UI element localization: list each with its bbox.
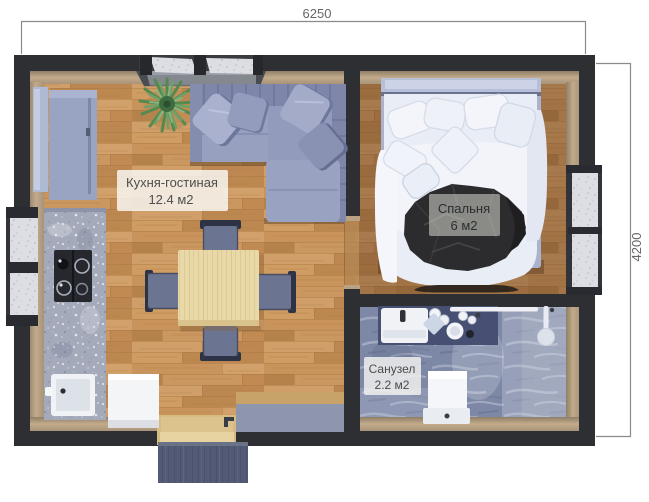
svg-text:6250: 6250 bbox=[303, 6, 332, 21]
svg-text:4200: 4200 bbox=[629, 233, 644, 262]
svg-text:12.4 м2: 12.4 м2 bbox=[148, 192, 193, 207]
svg-text:Санузел: Санузел bbox=[369, 362, 416, 376]
svg-text:2.2 м2: 2.2 м2 bbox=[375, 378, 410, 392]
svg-text:6 м2: 6 м2 bbox=[450, 218, 477, 233]
svg-text:Кухня-гостиная: Кухня-гостиная bbox=[126, 175, 218, 190]
svg-text:Спальня: Спальня bbox=[438, 201, 490, 216]
